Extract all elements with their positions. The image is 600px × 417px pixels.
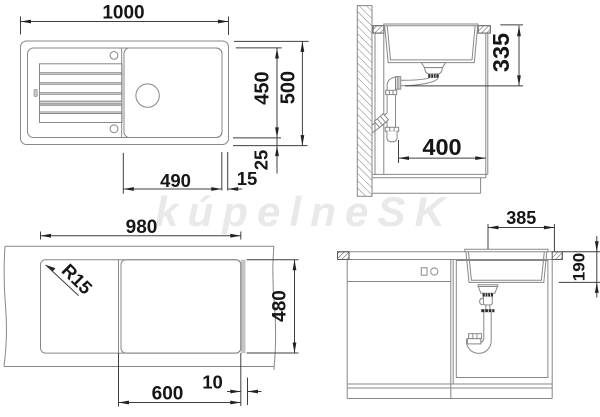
svg-text:400: 400 bbox=[422, 134, 461, 160]
svg-text:335: 335 bbox=[488, 33, 514, 72]
svg-text:480: 480 bbox=[269, 290, 290, 322]
svg-text:kúpelneSK: kúpelneSK bbox=[155, 188, 448, 235]
svg-text:R15: R15 bbox=[58, 259, 97, 298]
svg-text:15: 15 bbox=[237, 168, 258, 189]
svg-text:980: 980 bbox=[126, 217, 158, 238]
svg-text:500: 500 bbox=[277, 71, 299, 104]
svg-text:490: 490 bbox=[160, 170, 191, 191]
svg-text:600: 600 bbox=[152, 384, 184, 405]
svg-text:450: 450 bbox=[251, 71, 273, 104]
svg-text:385: 385 bbox=[506, 208, 536, 228]
svg-text:10: 10 bbox=[202, 372, 223, 393]
svg-text:190: 190 bbox=[569, 253, 588, 281]
svg-text:1000: 1000 bbox=[102, 3, 144, 24]
